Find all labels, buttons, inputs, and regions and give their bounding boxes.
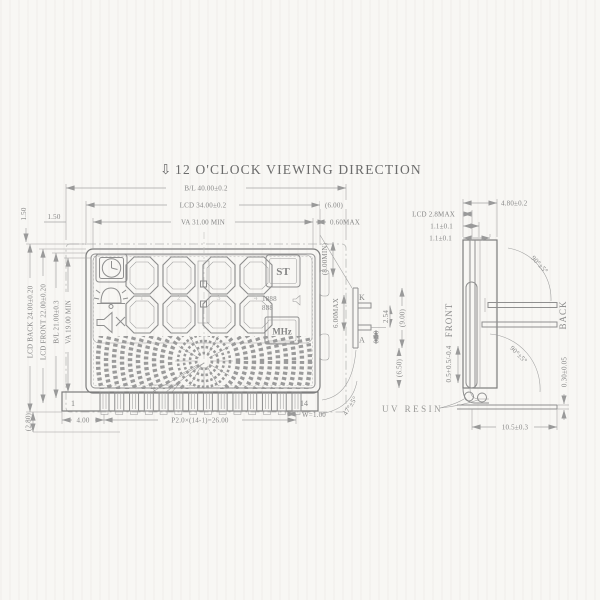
dim-lcd-back-height: LCD BACK 24.00±0.20 [27,285,35,358]
dim-bend-upper: 90°±5° [529,254,549,275]
pin [189,392,198,411]
digit-upper-segment [240,257,272,294]
pin [115,392,124,411]
dim-detail-overall: (9.00) [399,308,407,327]
front-face-label: FRONT [444,303,454,338]
a-pin-label: A [359,336,365,345]
st-badge: ST [266,255,300,287]
lcd-module-drawing: ⇩ 12 O'CLOCK VIEWING DIRECTION 1 14 [0,0,600,600]
pin [277,392,286,411]
small-speaker-icon [293,296,300,306]
pin [144,392,153,411]
right-tab-lower [320,334,329,360]
dim-corner-x: 1.50 [47,213,60,221]
dim-va-width: VA 31.00 MIN [181,219,225,227]
dim-bend-lower: 90°±5° [508,344,529,365]
side-view: 4.80±0.2 LCD 2.8MAX 1.1±0.1 1.1±0.1 FRON… [382,199,569,432]
resin-blob-right [478,393,487,402]
pin [100,392,109,411]
dim-detail-below: (6.50) [396,358,404,377]
dim-foot: 0.5+0.5/-0.4 [445,345,453,382]
dim-detail-pitch: 2.54 [382,310,390,323]
digit-upper-segment [163,257,195,294]
seven-segment-digits [126,257,272,333]
dim-pin-bend-angle: 47°±5° [341,395,359,417]
pin [174,392,183,411]
dim-bl-width: B/L 40.00±0.2 [184,185,228,193]
dim-pin-width: W=1.00 [302,411,326,419]
digit-upper-segment [203,257,235,294]
k-pin-label: K [359,293,365,302]
engineering-drawing-sheet: ⇩ 12 O'CLOCK VIEWING DIRECTION 1 14 [0,0,600,600]
back-face-label: BACK [558,300,568,329]
mhz-badge-label: MHz [272,327,292,337]
pin [203,392,212,411]
mute-speaker-icon [97,313,125,333]
resin-blob-left [465,392,474,401]
digit-label-4: 4 [254,294,258,302]
dim-side-t2: 1.1±0.1 [429,235,452,243]
page-title: 12 O'CLOCK VIEWING DIRECTION [175,162,422,177]
digit-upper-segment [126,257,158,294]
pin [262,392,271,411]
dim-detail-height-max: 6.00MAX [332,298,340,328]
viewing-direction-arrow-icon: ⇩ [160,162,173,177]
dim-side-t1: 1.1±0.1 [430,223,453,231]
pin-number-last: 14 [300,399,308,408]
lcd-panel-graphics: 1 2 3 4 ST 1888 888 MHz [93,254,312,467]
dim-lcd-offset: (6.00) [325,202,344,210]
dim-pin-pitch: P2.0×(14-1)=26.00 [171,417,228,425]
dim-bl-height: B/L 21.00±0.3 [53,300,61,344]
dim-plate-thickness: 0.30±0.05 [561,357,569,387]
dim-detail-height-min: (8.00MIN) [321,242,329,275]
dim-plate-length: 10.5±0.3 [502,424,529,432]
freq-digits-top: 1888 [262,295,277,303]
digit-label-1: 1 [140,294,144,302]
k-pin [358,303,371,308]
dim-lcd-width: LCD 34.00±0.2 [180,202,227,210]
pin [130,392,139,411]
dim-va-height: VA 19.00 MIN [65,300,73,344]
drawing-title: ⇩ 12 O'CLOCK VIEWING DIRECTION [160,162,422,177]
top-dimensions: B/L 40.00±0.2 LCD 34.00±0.2 (6.00) VA 31… [20,183,360,250]
pin-detail: K A 0.50 2.54 (9.00) (6.50) 6.00MAX (8.0… [320,235,407,400]
dim-side-total: 4.80±0.2 [501,200,528,208]
pin-number-first: 1 [71,399,75,408]
alarm-bell-icon [94,288,128,309]
digit-label-3: 3 [217,294,221,302]
dim-corner-y: 1.50 [20,207,28,220]
uv-resin-label: UV RESIN [382,404,443,414]
pin [233,392,242,411]
dim-side-lcd: LCD 2.8MAX [412,211,455,219]
freq-digits-bottom: 888 [262,304,273,312]
dim-pin-offset: 4.00 [76,417,89,425]
pin [218,392,227,411]
dim-va-offset: 0.60MAX [330,219,360,227]
digit-label-2: 2 [177,294,181,302]
dim-detail-pin-width: 0.50 [373,330,381,343]
dim-bottom-offset: (2.80) [25,412,33,431]
side-pin-lower [482,322,557,327]
pin [159,392,168,411]
clock-icon [96,254,127,282]
side-pin-upper [488,303,557,308]
a-pin [358,325,371,330]
pin [248,392,257,411]
st-badge-label: ST [276,266,290,278]
dim-lcd-front-height: LCD FRONT 22.00±0.20 [40,284,48,360]
freq-digits: 1888 888 [262,295,300,312]
